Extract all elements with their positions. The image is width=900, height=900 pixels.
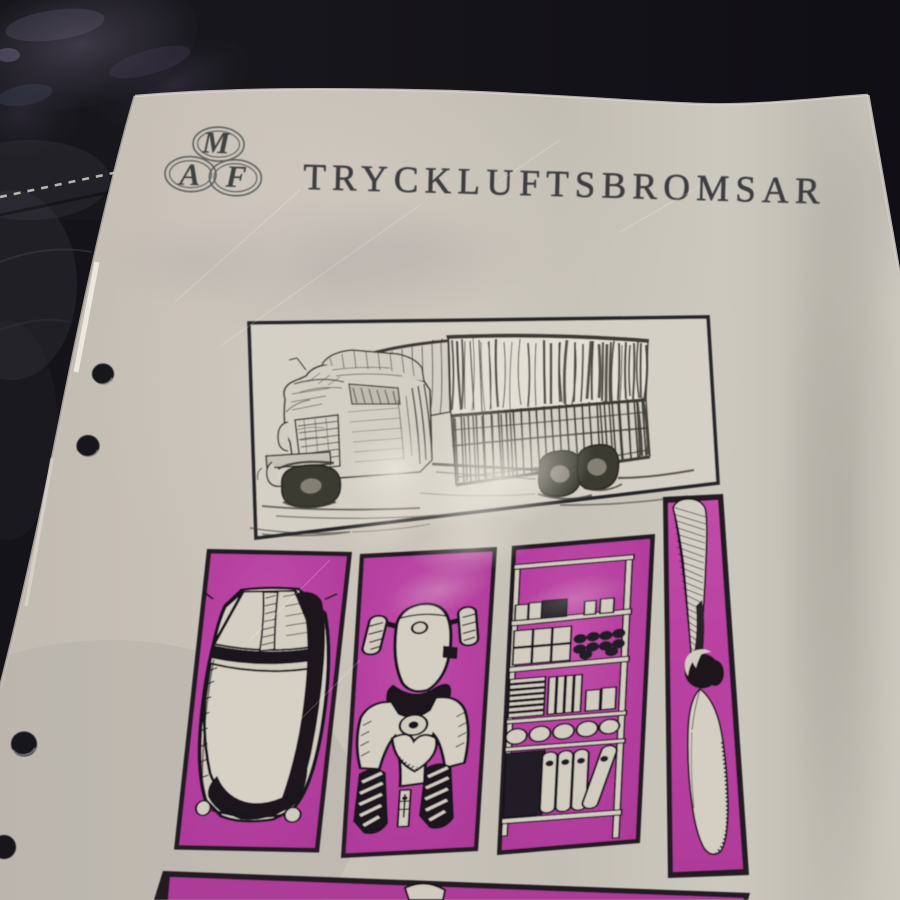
svg-text:M: M xyxy=(201,124,232,160)
svg-text:F: F xyxy=(224,159,247,195)
svg-text:A: A xyxy=(177,157,201,193)
